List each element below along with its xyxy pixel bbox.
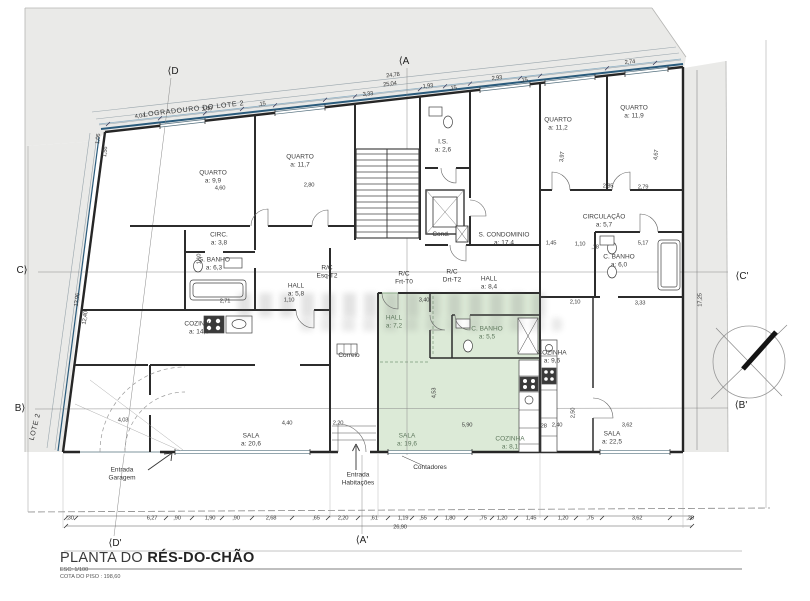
duct <box>456 226 468 242</box>
page-title: PLANTA DO RÉS-DO-CHÃO <box>60 550 255 566</box>
plan-title-prefix: PLANTA DO <box>60 550 147 566</box>
floor-plan-page: QUARTO a: 9,9QUARTO a: 11,7I.S. a: 2,6QU… <box>0 0 810 601</box>
lot-dashed-line <box>28 508 770 512</box>
plan-level: COTA DO PISO : 198,60 <box>60 574 255 580</box>
plan-title-name: RÉS-DO-CHÃO <box>147 550 254 566</box>
watermark <box>300 318 562 331</box>
watermark <box>238 293 548 317</box>
title-block: PLANTA DO RÉS-DO-CHÃO ESC: 1/100 COTA DO… <box>60 550 255 580</box>
staircase <box>356 149 419 238</box>
plan-scale: ESC: 1/100 <box>60 567 255 573</box>
